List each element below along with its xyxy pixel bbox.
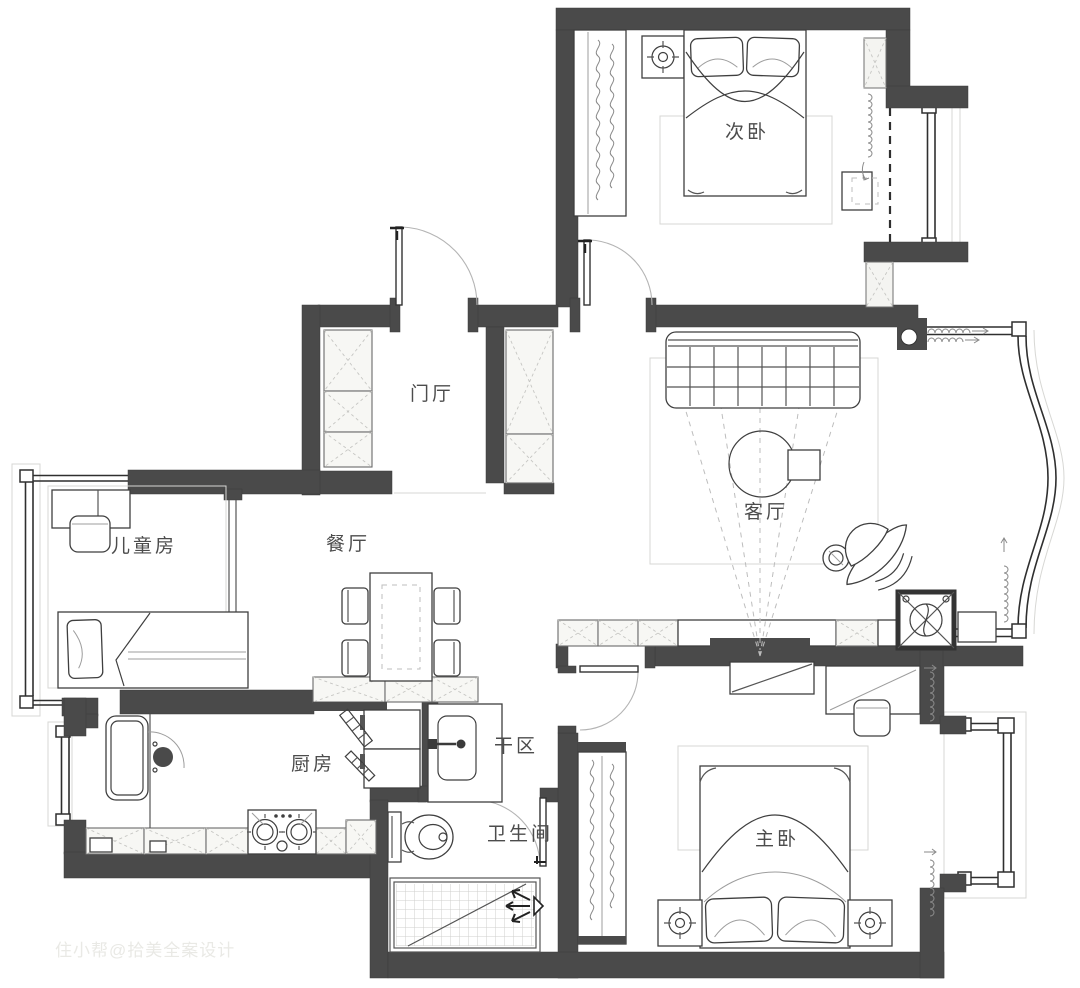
room-living: 客厅: [650, 328, 1008, 656]
bedroom2-door: [578, 240, 652, 305]
shower-symbol: [390, 878, 543, 952]
wardrobe-symbol: [574, 30, 626, 216]
entry-cabinet-east: [506, 330, 553, 483]
windows: [12, 96, 1064, 898]
entry-door: [390, 227, 477, 305]
ac-unit-symbol: [898, 592, 996, 648]
watermark: 住小帮@拾美全案设计: [55, 941, 235, 960]
double-bed-symbol: [700, 766, 850, 948]
vanity-symbol: [428, 704, 502, 802]
double-bed-symbol: [684, 30, 806, 196]
toilet-symbol: [388, 812, 453, 862]
room-dining: 餐厅: [326, 533, 460, 681]
room-label-master-bedroom: 主卧: [755, 828, 799, 850]
room-label-secondary-bedroom: 次卧: [725, 121, 769, 143]
fridge-symbol: [360, 710, 420, 788]
room-dry-area: 干区: [428, 704, 538, 802]
desk-symbol: [826, 666, 920, 736]
window-bedroom2-bay: [890, 96, 960, 250]
coffee-table-symbol: [729, 431, 820, 497]
room-master-bedroom: 主卧: [578, 662, 936, 948]
floor-plan: 次卧: [0, 0, 1080, 988]
single-bed-symbol: [58, 612, 248, 688]
curtain-symbol: [862, 94, 872, 180]
stove-symbol: [247, 810, 316, 854]
room-label-dry-area: 干区: [494, 736, 538, 757]
curtain-symbol: [928, 328, 1008, 622]
room-label-dining: 餐厅: [326, 533, 370, 555]
room-entry-hall: 门厅: [394, 383, 486, 493]
window-kitchen-west: [48, 722, 72, 826]
room-kids: 儿童房: [48, 486, 248, 688]
room-bathroom: 卫生间: [388, 812, 553, 952]
entry-cabinet-west: [324, 330, 372, 467]
dining-table-symbol: [370, 573, 432, 681]
room-label-entry-hall: 门厅: [410, 383, 454, 405]
nightstand-symbol: [642, 36, 684, 78]
dresser-symbol: [730, 662, 814, 694]
room-secondary-bedroom: 次卧: [574, 30, 878, 224]
desk-symbol: [842, 172, 878, 210]
wardrobe-symbol: [578, 742, 626, 944]
room-label-kitchen: 厨房: [291, 753, 335, 775]
radiator-symbol: [897, 318, 927, 350]
sofa-symbol: [666, 332, 860, 408]
room-label-kids: 儿童房: [111, 535, 177, 557]
room-label-living: 客厅: [744, 501, 788, 523]
master-door: [580, 666, 638, 730]
room-label-bathroom: 卫生间: [487, 823, 553, 845]
window-master-bay: [944, 712, 1026, 898]
living-storage-row: [558, 620, 920, 647]
kitchen-sink-symbol: [106, 716, 184, 800]
